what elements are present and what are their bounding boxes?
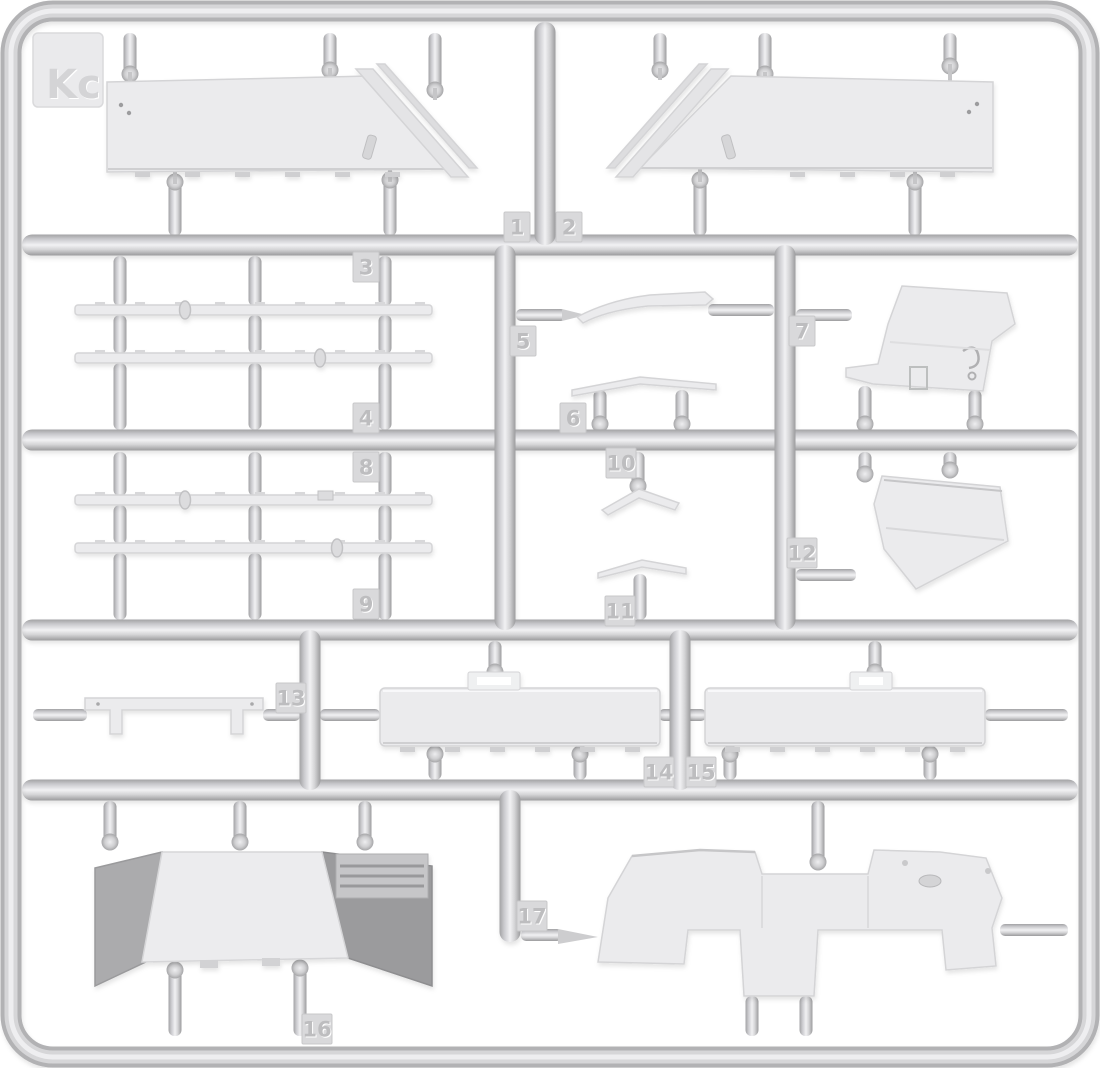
edge-tab: [445, 747, 460, 752]
gate-bulb: [427, 746, 444, 763]
edge-tab: [790, 172, 805, 177]
gate-vertical: [379, 553, 392, 620]
part-tag-8: 88: [353, 452, 379, 482]
part-tag-2: 22: [556, 212, 582, 242]
gate-tip: [558, 929, 598, 944]
part-14-side-panel: [380, 672, 660, 752]
edge-tab: [890, 172, 905, 177]
part-tag-1: 11: [504, 212, 530, 242]
runner-horizontal: [22, 620, 1078, 641]
gate-bulb: [922, 746, 939, 763]
edge-tab: [950, 747, 965, 752]
part-tag-7: 77: [789, 316, 815, 346]
part-tag-15: 1515: [686, 757, 717, 787]
gate-pin: [658, 68, 662, 80]
part-tag-17: 1717: [517, 901, 548, 931]
gate-bulb: [857, 466, 874, 483]
edge-tab: [940, 172, 955, 177]
part-5-wing-piece: [577, 292, 713, 323]
gate-bulb: [232, 834, 249, 851]
edge-tab: [135, 172, 150, 177]
part-tag-4: 44: [353, 403, 379, 433]
edge-tab: [625, 747, 640, 752]
part-tag-14: 1414: [644, 757, 675, 787]
part-tag-11: 1111: [605, 596, 636, 626]
sprue-label: Kc: [46, 62, 101, 108]
buckle-detail: [180, 301, 191, 319]
gate-vertical: [114, 505, 127, 544]
gate-vertical: [379, 452, 392, 496]
edge-tab: [535, 747, 550, 752]
gate-vertical: [249, 553, 262, 620]
edge-tab: [770, 747, 785, 752]
buckle-detail: [332, 539, 343, 557]
gate-bulb: [167, 962, 184, 979]
edge-tab: [815, 747, 830, 752]
gate-bulb: [810, 854, 827, 871]
edge-tab: [285, 172, 300, 177]
buckle-detail: [180, 491, 191, 509]
gate-horizontal: [1000, 924, 1068, 936]
edge-tab: [725, 747, 740, 752]
edge-tab: [860, 747, 875, 752]
gate-horizontal: [796, 569, 856, 581]
gate-vertical: [249, 256, 262, 306]
part-number: 7: [795, 320, 810, 344]
part-12-blade-panel: [874, 476, 1008, 589]
gate-bulb: [292, 960, 309, 977]
part-number: 5: [516, 330, 531, 354]
gate-horizontal: [708, 304, 774, 316]
part-number: 12: [787, 542, 816, 566]
part-16-hull-tub: [95, 852, 432, 986]
part-number: 10: [606, 452, 635, 476]
part-number: 2: [562, 216, 577, 240]
gate-vertical: [379, 256, 392, 306]
part-number: 3: [359, 256, 374, 280]
runner-vertical: [535, 22, 556, 245]
gate-vertical: [114, 452, 127, 496]
part-number: 1: [510, 216, 525, 240]
buckle-detail: [315, 349, 326, 367]
gate-horizontal: [33, 709, 87, 721]
part-number: 11: [605, 600, 634, 624]
oval-detail: [919, 875, 941, 887]
part-tag-6: 66: [560, 403, 586, 433]
part-tag-5: 55: [510, 326, 536, 356]
part-number: 15: [686, 761, 715, 785]
gate-horizontal: [516, 309, 566, 321]
part-tag-9: 99: [353, 589, 379, 619]
part-number: 14: [644, 761, 673, 785]
part-number: 13: [276, 687, 305, 711]
gate-vertical: [249, 452, 262, 496]
gate-pin: [433, 88, 437, 100]
part-17-bulkhead: [598, 850, 1002, 996]
gate-vertical: [379, 505, 392, 544]
gate-vertical: [249, 363, 262, 430]
gate-vertical: [800, 996, 813, 1036]
sprue-label-tab: Kc Kc: [33, 33, 103, 109]
gate-vertical: [249, 505, 262, 544]
edge-tab: [840, 172, 855, 177]
runner-horizontal: [22, 780, 1078, 801]
part-tag-12: 1212: [787, 538, 818, 568]
part-15-side-panel: [705, 672, 985, 752]
gate-vertical: [379, 363, 392, 430]
gate-horizontal: [985, 709, 1068, 721]
gate-horizontal: [320, 709, 380, 721]
runner-vertical: [495, 245, 516, 630]
part-6-wing-piece: [572, 377, 716, 396]
gate-bulb: [357, 834, 374, 851]
part-number: 9: [359, 593, 374, 617]
part-tag-10: 1010: [606, 448, 637, 478]
part-13-bracket: [85, 698, 263, 734]
runner-horizontal: [22, 430, 1078, 451]
part-number: 17: [517, 905, 546, 929]
edge-tab: [490, 747, 505, 752]
part-10-winglet: [602, 489, 679, 515]
runner-vertical: [775, 245, 796, 630]
gate-bulb: [942, 462, 959, 479]
edge-tab: [400, 747, 415, 752]
edge-tab: [185, 172, 200, 177]
clip-detail: [318, 491, 333, 500]
part-7-blade-panel: [846, 286, 1015, 391]
edge-tab: [335, 172, 350, 177]
gate-vertical: [379, 315, 392, 354]
sprue-photo: 1122334455667788991010111112121313141415…: [0, 0, 1100, 1068]
edge-tab: [235, 172, 250, 177]
part-tag-3: 33: [353, 252, 379, 282]
part-tag-13: 1313: [276, 683, 307, 713]
gate-vertical: [249, 315, 262, 354]
part-number: 6: [566, 407, 581, 431]
part-number: 4: [359, 407, 374, 431]
part-tag-16: 1616: [302, 1014, 333, 1044]
edge-tab: [905, 747, 920, 752]
part-number: 8: [359, 456, 374, 480]
part-number: 16: [302, 1018, 331, 1042]
gate-vertical: [746, 996, 759, 1036]
gate-vertical: [114, 363, 127, 430]
edge-tab: [580, 747, 595, 752]
edge-tab: [385, 172, 400, 177]
part-2-hull-panel: [607, 64, 993, 177]
gate-bulb: [102, 834, 119, 851]
gate-vertical: [114, 315, 127, 354]
part-1-hull-panel: [107, 64, 477, 177]
sprue-svg: 1122334455667788991010111112121313141415…: [0, 0, 1100, 1068]
gate-vertical: [114, 553, 127, 620]
gate-vertical: [114, 256, 127, 306]
